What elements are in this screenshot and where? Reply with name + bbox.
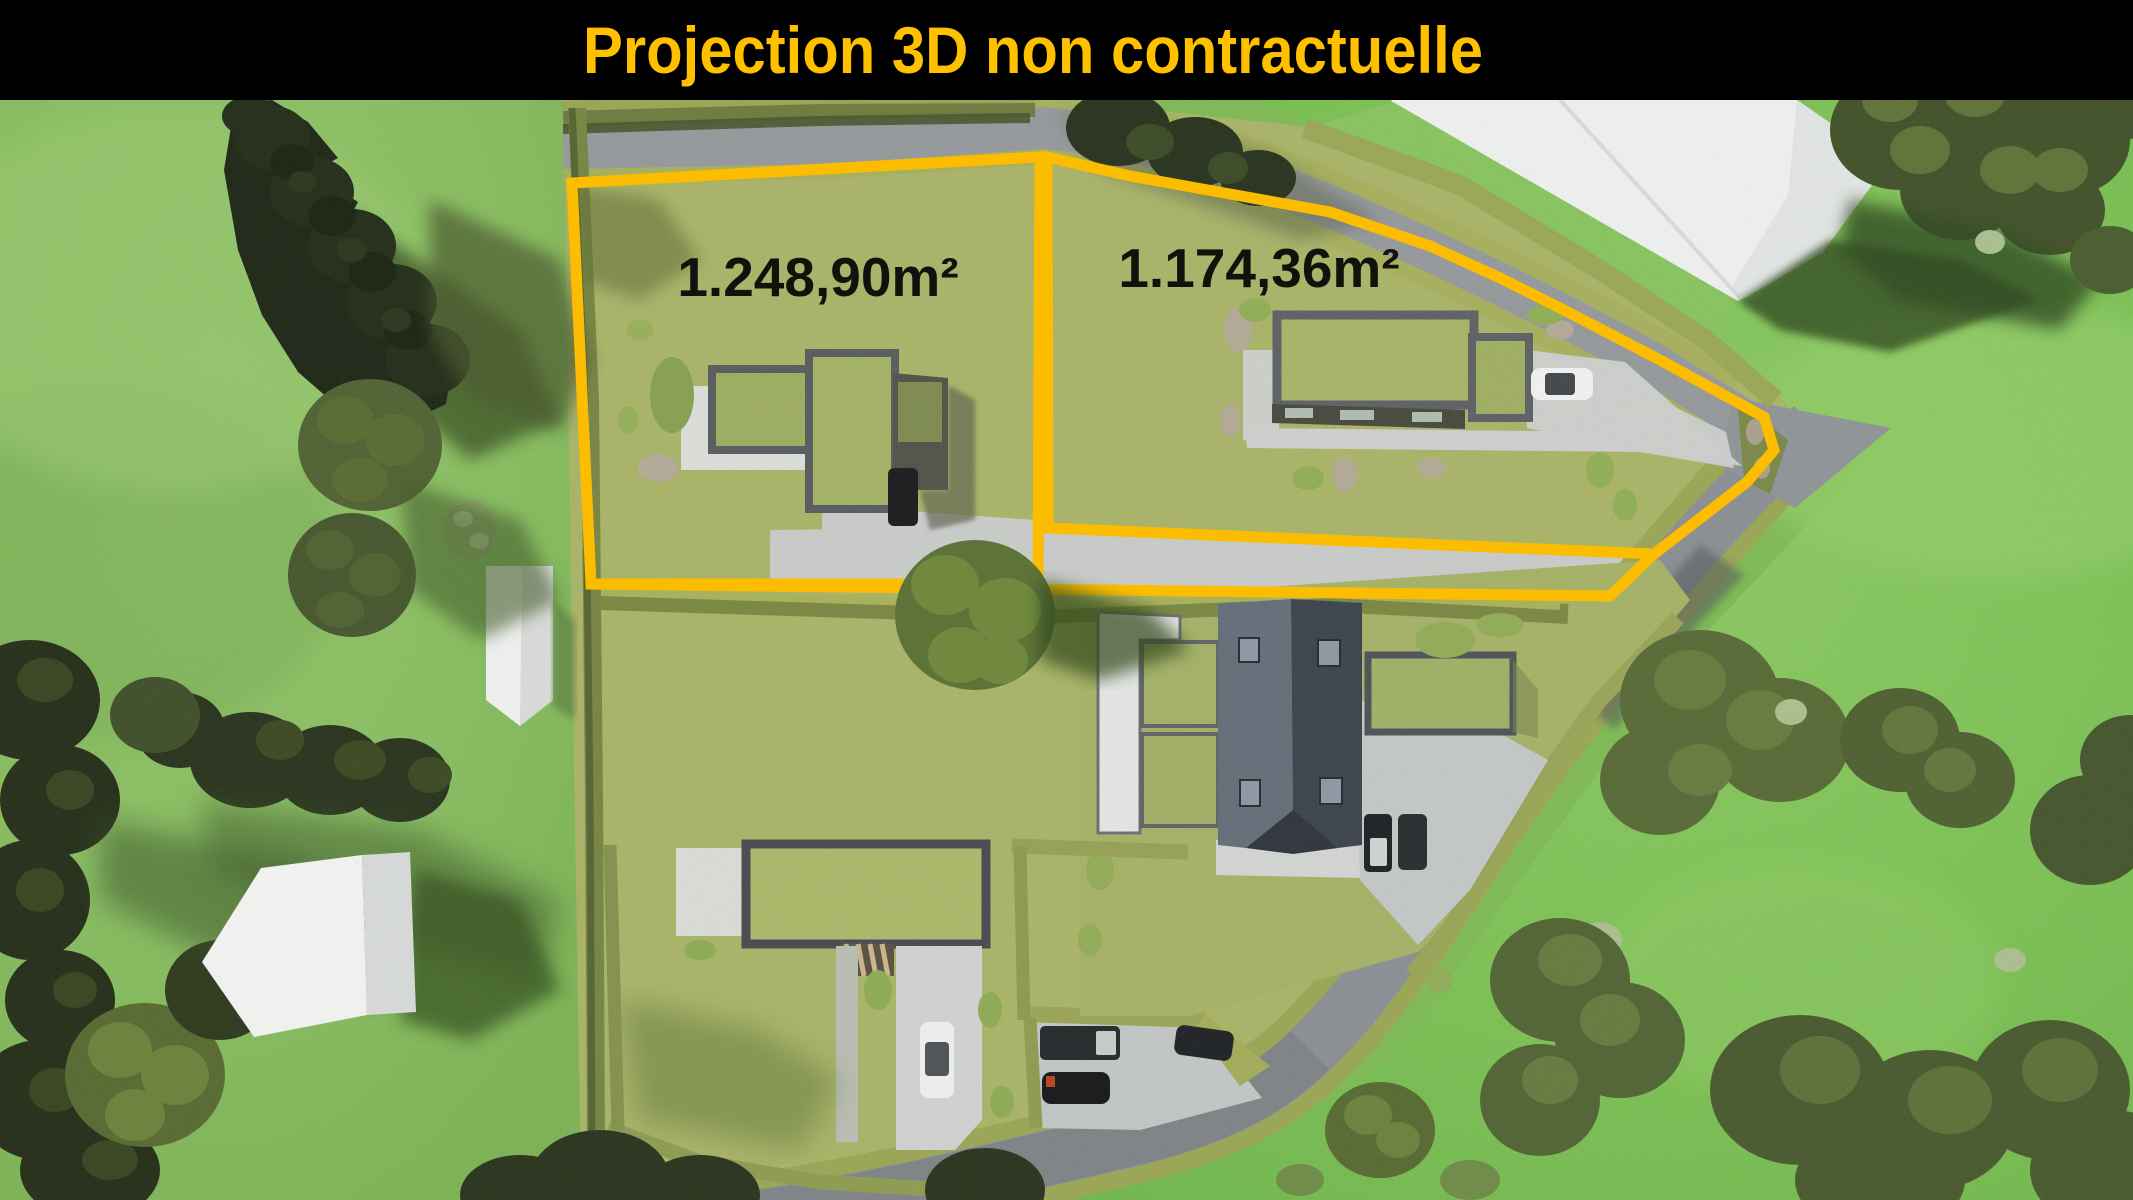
svg-text:Projection 3D non contractuell: Projection 3D non contractuelle: [583, 13, 1483, 87]
svg-text:1.248,90m²: 1.248,90m²: [677, 246, 958, 308]
svg-text:1.174,36m²: 1.174,36m²: [1118, 237, 1399, 299]
